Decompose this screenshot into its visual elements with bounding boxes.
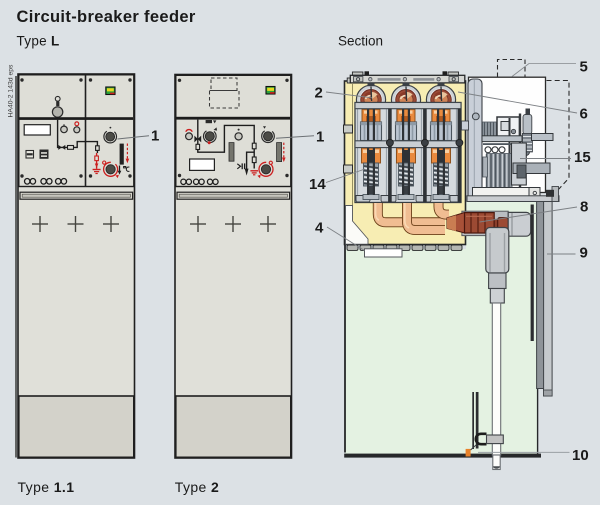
svg-text:Circuit-breaker feeder: Circuit-breaker feeder (17, 8, 196, 26)
svg-text:Section: Section (338, 34, 383, 49)
svg-text:8: 8 (580, 199, 588, 216)
svg-text:14: 14 (309, 176, 326, 193)
svg-text:Type 1.1: Type 1.1 (18, 479, 75, 495)
svg-text:HA40-2 143d eps: HA40-2 143d eps (8, 64, 15, 118)
svg-text:6: 6 (580, 106, 588, 123)
svg-text:Type 2: Type 2 (175, 479, 219, 495)
svg-text:4: 4 (315, 220, 324, 237)
svg-text:2: 2 (315, 85, 323, 102)
svg-text:1: 1 (151, 128, 159, 145)
svg-text:10: 10 (572, 447, 589, 464)
svg-text:Type L: Type L (17, 34, 60, 49)
svg-text:9: 9 (580, 245, 588, 262)
svg-text:15: 15 (574, 149, 591, 166)
svg-text:1: 1 (316, 129, 324, 146)
svg-text:5: 5 (580, 59, 588, 76)
